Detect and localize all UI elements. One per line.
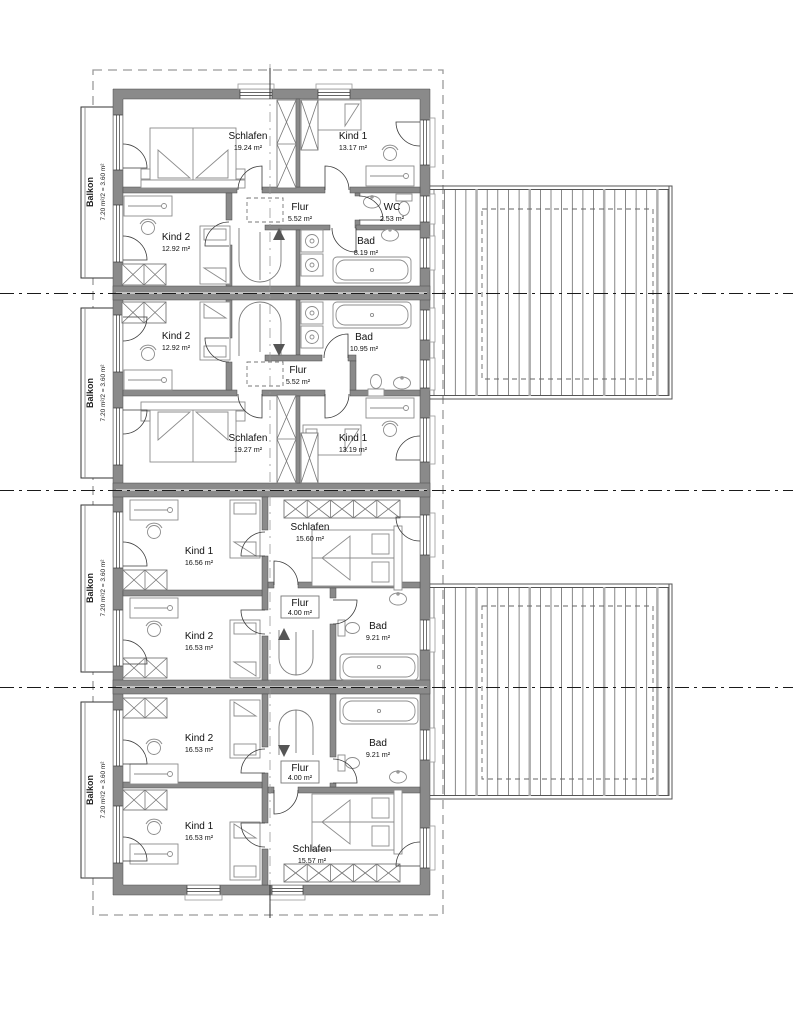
window xyxy=(114,610,123,666)
window-sill xyxy=(316,84,352,89)
window xyxy=(270,886,305,901)
window xyxy=(421,118,436,167)
balcony-label: Balkon xyxy=(85,177,95,207)
room-label: Schlafen xyxy=(229,131,268,142)
room-label: Schlafen xyxy=(229,433,268,444)
window-sill xyxy=(430,728,435,762)
desk-icon xyxy=(124,196,172,216)
washer-icon xyxy=(301,254,323,276)
wardrobe-icon xyxy=(122,302,166,323)
double-bed-icon xyxy=(141,402,245,462)
window xyxy=(421,618,436,652)
balcony-area: 7.20 m²/2 = 3.60 m² xyxy=(100,761,107,819)
window-gap xyxy=(114,408,123,465)
room-area: 8.19 m² xyxy=(354,248,379,257)
washer-icon xyxy=(301,326,323,348)
room-area: 5.52 m² xyxy=(286,377,311,386)
window-gap xyxy=(240,90,272,99)
single-bed-icon xyxy=(230,822,260,880)
window xyxy=(421,236,436,270)
window xyxy=(238,84,274,99)
window xyxy=(421,728,436,762)
balcony-label: Balkon xyxy=(85,775,95,805)
balcony-label: Balkon xyxy=(85,378,95,408)
room-label: Flur xyxy=(291,202,309,213)
window-gap xyxy=(114,710,123,766)
room-label: Kind 2 xyxy=(162,232,191,243)
wardrobe-icon xyxy=(301,433,318,483)
room-area: 12.92 m² xyxy=(162,244,191,253)
window-gap xyxy=(114,115,123,170)
room-area: 16.56 m² xyxy=(185,558,214,567)
floor-plan: Schlafen 19.24 m² Kind 1 13.17 m² Flur 5… xyxy=(0,0,793,1009)
window-sill xyxy=(430,358,435,390)
window xyxy=(421,513,436,557)
wardrobe-icon xyxy=(301,100,318,150)
room-area: 5.52 m² xyxy=(288,214,313,223)
room-area: 16.53 m² xyxy=(185,745,214,754)
room-label: Bad xyxy=(369,738,387,749)
single-bed-icon xyxy=(230,700,260,758)
room-label: Schlafen xyxy=(291,522,330,533)
room-label: Kind 2 xyxy=(162,331,191,342)
window-gap xyxy=(114,315,123,372)
balcony-label: Balkon xyxy=(85,573,95,603)
room-label: Flur xyxy=(289,365,307,376)
desk-icon xyxy=(130,764,178,784)
window xyxy=(114,115,123,170)
window-gap xyxy=(421,310,430,340)
window-sill xyxy=(430,308,435,342)
window-gap xyxy=(114,205,123,262)
window xyxy=(421,308,436,342)
window xyxy=(114,806,123,863)
window xyxy=(114,315,123,372)
room-area: 16.53 m² xyxy=(185,643,214,652)
bathtub-icon xyxy=(333,302,411,328)
desk-icon xyxy=(366,398,414,418)
window-sill xyxy=(430,826,435,870)
room-label: Kind 2 xyxy=(185,733,214,744)
room-label: Bad xyxy=(357,236,375,247)
room-area: 19.24 m² xyxy=(234,143,263,152)
window xyxy=(114,512,123,568)
wardrobe-icon xyxy=(284,864,400,882)
window-gap xyxy=(421,730,430,760)
window-gap xyxy=(187,886,220,895)
window-gap xyxy=(421,196,430,222)
desk-icon xyxy=(130,598,178,618)
wardrobe-icon xyxy=(122,264,166,285)
window-gap xyxy=(114,610,123,666)
room-label: Kind 1 xyxy=(339,131,368,142)
room-label: Kind 1 xyxy=(339,433,368,444)
wardrobe-icon xyxy=(123,790,167,810)
room-area: 9.21 m² xyxy=(366,750,391,759)
bathtub-icon xyxy=(340,654,418,680)
window xyxy=(316,84,352,99)
window-gap xyxy=(318,90,350,99)
room-area: 13.19 m² xyxy=(339,445,368,454)
wardrobe-icon xyxy=(123,570,167,590)
wardrobe-icon xyxy=(277,395,296,483)
room-label: Kind 2 xyxy=(185,631,214,642)
window xyxy=(114,205,123,262)
room-label: Bad xyxy=(369,621,387,632)
window-gap xyxy=(421,515,430,555)
wardrobe-icon xyxy=(277,100,296,188)
window-sill xyxy=(430,513,435,557)
room-area: 2.53 m² xyxy=(380,214,405,223)
window-sill xyxy=(430,118,435,167)
window xyxy=(421,826,436,870)
window-sill xyxy=(430,416,435,464)
room-area: 15.60 m² xyxy=(296,534,325,543)
bathtub-icon xyxy=(333,257,411,283)
window-sill xyxy=(270,895,305,900)
wardrobe-icon xyxy=(284,500,400,518)
window xyxy=(114,408,123,465)
window-sill xyxy=(430,236,435,270)
window-sill xyxy=(430,194,435,224)
room-area: 4.00 m² xyxy=(288,773,313,782)
window-gap xyxy=(272,886,303,895)
wardrobe-icon xyxy=(123,658,167,678)
window-gap xyxy=(421,238,430,268)
window-sill xyxy=(430,618,435,652)
window xyxy=(114,710,123,766)
single-bed-icon xyxy=(230,500,260,558)
balcony-area: 7.20 m²/2 = 3.60 m² xyxy=(100,364,107,422)
window xyxy=(421,358,436,390)
window-gap xyxy=(421,418,430,462)
balcony-area: 7.20 m²/2 = 3.60 m² xyxy=(100,163,107,221)
window-sill xyxy=(185,895,222,900)
single-bed-icon xyxy=(230,620,260,678)
window-gap xyxy=(421,828,430,868)
single-bed-icon xyxy=(200,226,230,284)
room-area: 13.17 m² xyxy=(339,143,368,152)
single-bed-icon xyxy=(200,302,230,360)
washer-icon xyxy=(301,302,323,324)
window-gap xyxy=(421,620,430,650)
window xyxy=(421,194,436,224)
window-gap xyxy=(421,360,430,388)
window xyxy=(185,886,222,901)
room-label: WC xyxy=(384,202,401,213)
room-label: Kind 1 xyxy=(185,821,214,832)
room-area: 12.92 m² xyxy=(162,343,191,352)
room-area: 15.57 m² xyxy=(298,856,327,865)
room-label: Kind 1 xyxy=(185,546,214,557)
wardrobe-icon xyxy=(123,698,167,718)
double-bed-icon xyxy=(312,526,402,590)
room-label: Schlafen xyxy=(293,844,332,855)
room-area: 9.21 m² xyxy=(366,633,391,642)
window xyxy=(421,416,436,464)
room-area: 19.27 m² xyxy=(234,445,263,454)
desk-icon xyxy=(124,370,172,390)
window-gap xyxy=(114,512,123,568)
desk-icon xyxy=(130,500,178,520)
washer-icon xyxy=(301,230,323,252)
desk-icon xyxy=(366,166,414,186)
balcony-area: 7.20 m²/2 = 3.60 m² xyxy=(100,559,107,617)
window-gap xyxy=(421,120,430,165)
room-area: 4.00 m² xyxy=(288,608,313,617)
room-area: 10.95 m² xyxy=(350,344,379,353)
bathtub-icon xyxy=(340,698,418,724)
room-label: Bad xyxy=(355,332,373,343)
room-area: 16.53 m² xyxy=(185,833,214,842)
window-sill xyxy=(238,84,274,89)
window-gap xyxy=(114,806,123,863)
